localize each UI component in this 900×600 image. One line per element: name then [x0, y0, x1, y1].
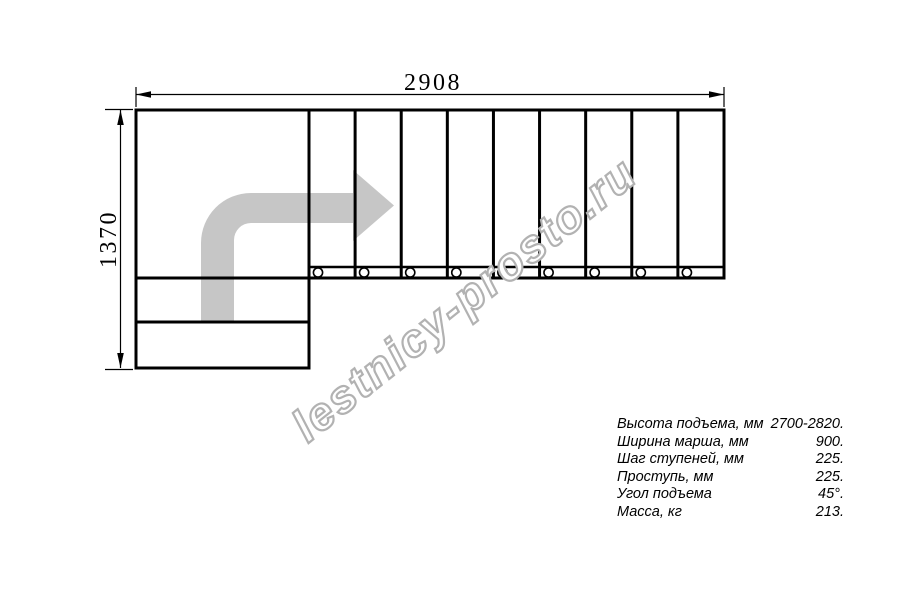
- spec-table: Высота подъема, мм 2700-2820. Ширина мар…: [617, 416, 844, 522]
- fastener-circle-icon: [590, 268, 599, 277]
- fastener-circle-icon: [360, 268, 369, 277]
- direction-arrow-icon: [201, 170, 394, 322]
- fastener-circle-icon: [636, 268, 645, 277]
- dim-arrow-left-icon: [136, 91, 151, 98]
- spec-label: Ширина марша, мм: [617, 434, 749, 452]
- height-dimension-label: 1370: [96, 210, 122, 268]
- fastener-circle-icon: [682, 268, 691, 277]
- spec-label: Шаг ступеней, мм: [617, 451, 744, 469]
- dim-arrow-up-icon: [117, 110, 124, 125]
- spec-value: 2700-2820.: [771, 416, 844, 434]
- entry-step-2: [136, 322, 309, 368]
- spec-row: Угол подъема 45°.: [617, 486, 844, 504]
- spec-row: Высота подъема, мм 2700-2820.: [617, 416, 844, 434]
- fastener-circle-icon: [313, 268, 322, 277]
- spec-row: Проступь, мм 225.: [617, 469, 844, 487]
- spec-label: Проступь, мм: [617, 469, 713, 487]
- spec-label: Угол подъема: [617, 486, 712, 504]
- dim-arrow-right-icon: [709, 91, 724, 98]
- spec-label: Высота подъема, мм: [617, 416, 764, 434]
- spec-value: 45°.: [818, 486, 844, 504]
- spec-row: Ширина марша, мм 900.: [617, 434, 844, 452]
- dimension-height: 1370: [96, 110, 133, 370]
- width-dimension-label: 2908: [404, 70, 462, 96]
- spec-label: Масса, кг: [617, 504, 682, 522]
- spec-value: 900.: [816, 434, 844, 452]
- spec-value: 225.: [816, 469, 844, 487]
- dimension-width: 2908: [136, 70, 724, 107]
- blueprint-page: 2908 1370 lestnicy-prosto.ru Высота подъ…: [0, 0, 900, 600]
- spec-value: 225.: [816, 451, 844, 469]
- spec-row: Шаг ступеней, мм 225.: [617, 451, 844, 469]
- spec-value: 213.: [816, 504, 844, 522]
- dim-arrow-down-icon: [117, 353, 124, 368]
- fastener-circle-icon: [406, 268, 415, 277]
- spec-row: Масса, кг 213.: [617, 504, 844, 522]
